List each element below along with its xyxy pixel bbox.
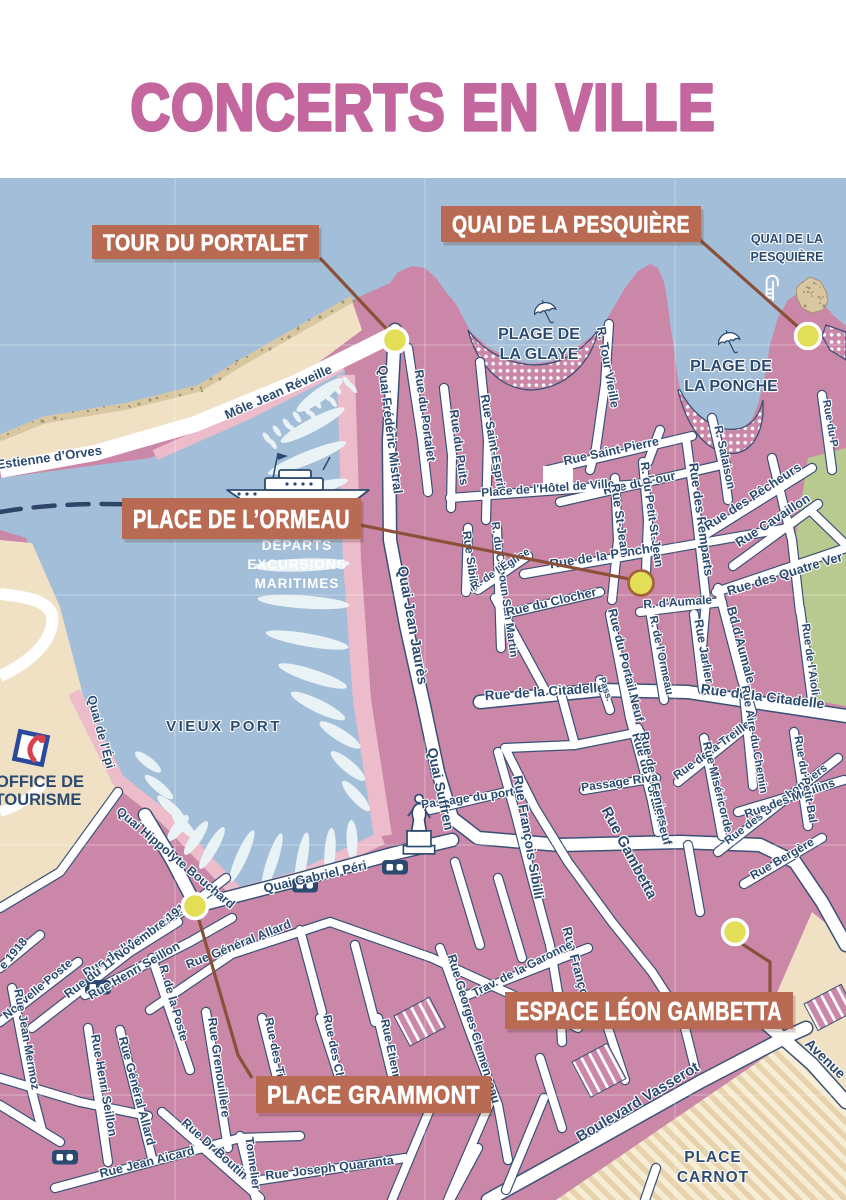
svg-text:PLACE GRAMMONT: PLACE GRAMMONT	[267, 1082, 480, 1110]
svg-text:PESQUIÈRE: PESQUIÈRE	[751, 249, 824, 264]
svg-text:LA GLAYE: LA GLAYE	[500, 346, 579, 363]
svg-text:QUAI DE LA PESQUIÈRE: QUAI DE LA PESQUIÈRE	[452, 211, 690, 239]
svg-text:TOURISME: TOURISME	[0, 791, 81, 809]
svg-text:PLAGE DE: PLAGE DE	[498, 326, 580, 343]
svg-text:CARNOT: CARNOT	[677, 1169, 749, 1186]
svg-text:PLACE DE L’ORMEAU: PLACE DE L’ORMEAU	[133, 504, 350, 534]
svg-text:PLACE: PLACE	[684, 1149, 742, 1166]
svg-text:OFFICE DE: OFFICE DE	[0, 773, 84, 791]
svg-text:ESPACE LÉON GAMBETTA: ESPACE LÉON GAMBETTA	[516, 996, 782, 1026]
svg-text:QUAI DE LA: QUAI DE LA	[751, 232, 823, 246]
svg-text:EXCURSIONS: EXCURSIONS	[247, 557, 346, 572]
svg-text:MARITIMES: MARITIMES	[255, 576, 340, 591]
svg-text:PLAGE DE: PLAGE DE	[690, 358, 772, 375]
svg-text:TOUR DU PORTALET: TOUR DU PORTALET	[103, 229, 308, 255]
svg-text:CONCERTS EN VILLE: CONCERTS EN VILLE	[131, 70, 716, 144]
svg-text:LA PONCHE: LA PONCHE	[684, 378, 778, 395]
svg-text:VIEUX PORT: VIEUX PORT	[166, 718, 282, 735]
